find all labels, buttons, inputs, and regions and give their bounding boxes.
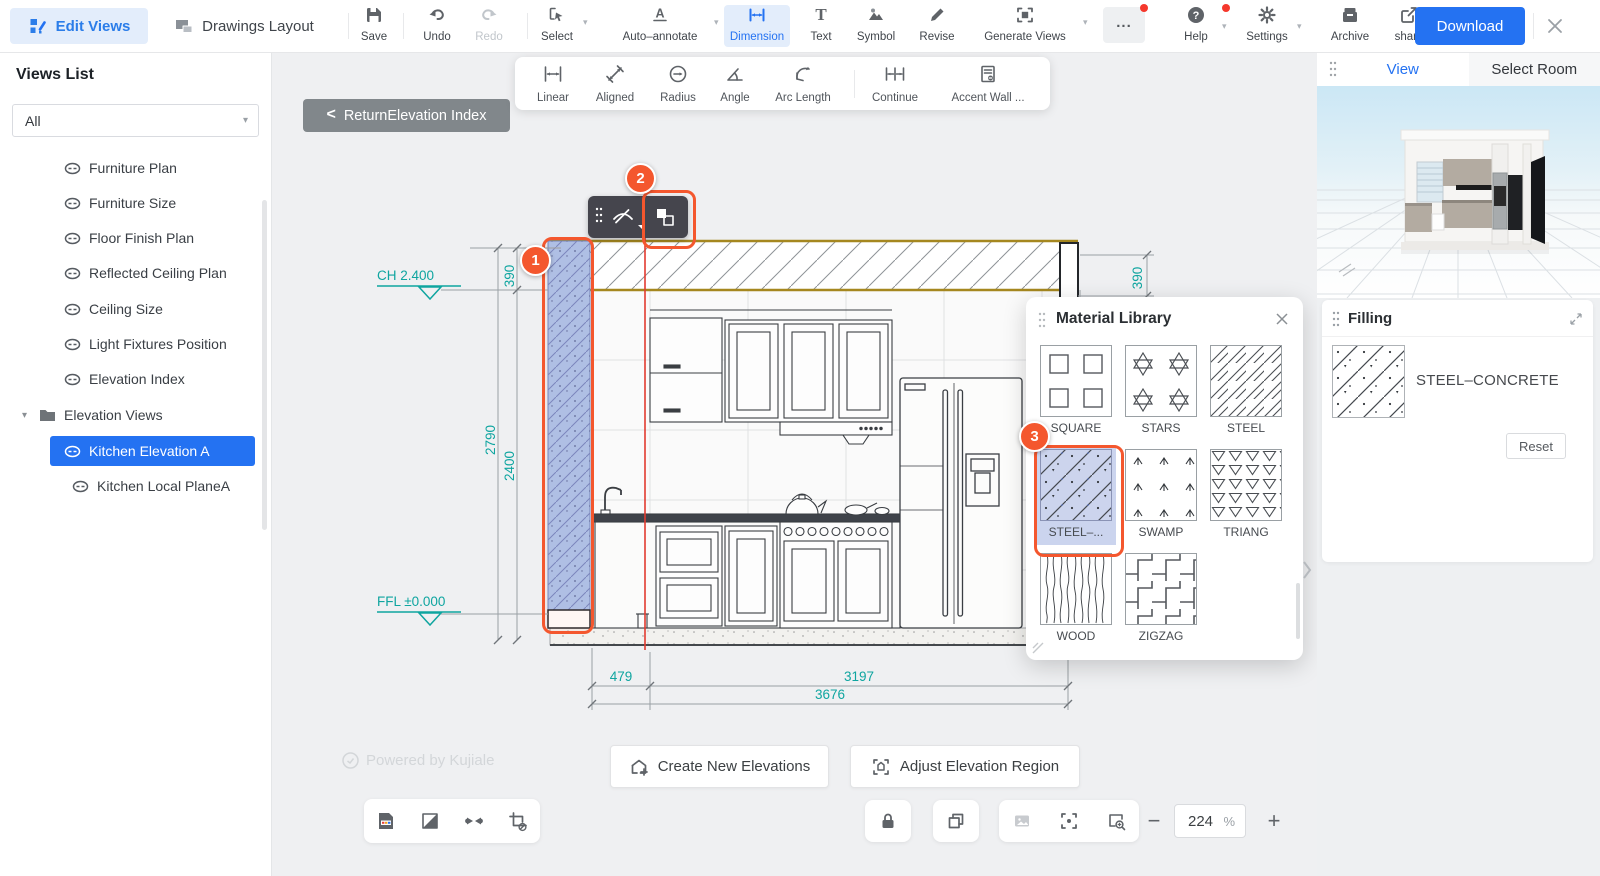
- save-icon: [364, 5, 384, 25]
- drag-handle-icon[interactable]: [1332, 311, 1340, 332]
- help-icon: ?: [1186, 5, 1206, 25]
- sidebar-item-elevation-index[interactable]: Elevation Index: [0, 364, 260, 394]
- save-label: Save: [342, 31, 406, 43]
- dim-band-right: 390: [1130, 267, 1145, 290]
- material-tile-stars[interactable]: STARS: [1125, 345, 1197, 437]
- tab-view-label: View: [1387, 61, 1419, 78]
- more-icon: ...: [1116, 14, 1132, 31]
- material-name: STEEL: [1210, 421, 1282, 437]
- edit-views-button[interactable]: Edit Views: [10, 8, 148, 44]
- focus-icon: [1059, 811, 1079, 831]
- sidebar-folder-elevation-views[interactable]: ▾ Elevation Views: [0, 400, 260, 430]
- hide-region-button[interactable]: [603, 205, 643, 229]
- eye-off-icon: [611, 205, 635, 229]
- filling-material-name: STEEL–CONCRETE: [1416, 372, 1559, 389]
- link-icon: [64, 162, 81, 175]
- material-tile-triang[interactable]: TRIANG: [1210, 449, 1282, 541]
- link-icon: [64, 232, 81, 245]
- home-plus-icon: [629, 757, 649, 777]
- radius-icon: [667, 63, 689, 85]
- step-marker-3: 3: [1019, 421, 1050, 452]
- more-button[interactable]: ...: [1103, 7, 1145, 43]
- generate-views-icon: [1015, 5, 1035, 25]
- doc-image-icon: [375, 810, 397, 832]
- adjust-region-icon: [871, 757, 891, 777]
- accent-wall-label: Accent Wall ...: [940, 92, 1036, 104]
- check-circle-icon: [342, 752, 359, 769]
- resize-handle-icon[interactable]: [1031, 641, 1045, 655]
- notification-dot: [1140, 4, 1148, 12]
- chevron-down-icon: ▾: [1083, 17, 1088, 28]
- settings-icon: [1257, 5, 1277, 25]
- chevron-down-icon: ▾: [1297, 21, 1302, 32]
- level-label-ceiling: CH 2.400: [377, 268, 434, 283]
- revise-label: Revise: [905, 31, 969, 43]
- marker-number: 2: [636, 170, 644, 187]
- material-name: ZIGZAG: [1125, 629, 1197, 645]
- redo-label: Redo: [457, 31, 521, 43]
- zoom-to-area-button[interactable]: [1106, 811, 1126, 831]
- svg-text:?: ?: [1193, 10, 1200, 22]
- tab-select-room-label: Select Room: [1491, 61, 1577, 78]
- settings-button[interactable]: Settings ▾: [1235, 5, 1299, 43]
- spline-button[interactable]: [463, 810, 485, 832]
- swap-button-highlight-ring: [642, 190, 696, 249]
- aligned-icon: [604, 63, 626, 85]
- material-name: TRIANG: [1210, 525, 1282, 541]
- dim-band-left: 390: [502, 265, 517, 288]
- close-icon: [1273, 310, 1291, 328]
- dimension-sub-toolbar: Linear Aligned Radius Angle Arc Length C…: [515, 57, 1050, 110]
- chevron-right-icon: [1301, 559, 1313, 581]
- drawing-canvas[interactable]: CH 2.400 FFL ±0.000 390 2790 2400 390 47…: [271, 52, 1317, 876]
- floor-band: [550, 628, 1083, 645]
- room-3d-preview[interactable]: [1317, 86, 1600, 298]
- crop-disabled-button[interactable]: [507, 810, 529, 832]
- drawing-editor-app: Edit Views Drawings Layout Save Undo Red…: [0, 0, 1600, 876]
- edit-views-label: Edit Views: [56, 18, 131, 35]
- redo-icon: [479, 5, 499, 25]
- material-name: STARS: [1125, 421, 1197, 437]
- lock-icon: [878, 811, 898, 831]
- duplicate-icon: [946, 811, 966, 831]
- close-button[interactable]: [1542, 13, 1568, 39]
- drag-handle-icon[interactable]: [595, 207, 603, 228]
- sidebar-item-kitchen-local-planea[interactable]: Kitchen Local PlaneA: [0, 471, 260, 501]
- link-icon: [64, 303, 81, 316]
- save-button[interactable]: Save: [342, 5, 406, 43]
- link-icon: [64, 373, 81, 386]
- dim-wall-height: 2400: [502, 451, 517, 481]
- zoom-level-input[interactable]: 224 %: [1174, 804, 1246, 838]
- divider: [403, 13, 404, 39]
- ceiling-hatch-band: [548, 241, 1078, 300]
- caret-down-icon: ▾: [22, 410, 27, 421]
- fill-style-button[interactable]: [419, 810, 441, 832]
- auto-annotate-label: Auto–annotate: [612, 31, 708, 43]
- help-label: Help: [1164, 31, 1228, 43]
- fit-view-button[interactable]: [1059, 811, 1079, 831]
- select-label: Select: [525, 31, 589, 43]
- chevron-down-icon: ▾: [583, 17, 588, 28]
- annotation-tools-panel: [364, 799, 540, 843]
- dimension-tool-button[interactable]: Dimension: [724, 5, 790, 47]
- lock-button[interactable]: [865, 800, 911, 842]
- download-label: Download: [1437, 18, 1504, 35]
- notification-dot: [1222, 4, 1230, 12]
- sidebar-folder-label: Elevation Views: [64, 407, 163, 423]
- image-preview-button[interactable]: [1012, 811, 1032, 831]
- material-library-title: Material Library: [1056, 310, 1171, 328]
- tab-select-room[interactable]: Select Room: [1469, 52, 1600, 86]
- revise-icon: [927, 5, 947, 25]
- drag-handle-icon[interactable]: [1317, 52, 1337, 86]
- zoom-out-button[interactable]: −: [1137, 800, 1171, 842]
- undo-icon: [427, 5, 447, 25]
- views-list-sidebar: Views List All ▾ Furniture Plan Furnitur…: [0, 52, 272, 876]
- sidebar-item-furniture-size[interactable]: Furniture Size: [0, 188, 260, 218]
- symbol-tool-button[interactable]: Symbol: [844, 5, 908, 43]
- symbol-label: Symbol: [844, 31, 908, 43]
- top-toolbar: Edit Views Drawings Layout Save Undo Red…: [0, 0, 1600, 53]
- selected-material-ring: [1034, 445, 1124, 557]
- filling-title: Filling: [1348, 310, 1392, 327]
- zoom-unit: %: [1223, 814, 1235, 829]
- bowtie-icon: [463, 810, 485, 832]
- filling-panel: Filling STEEL–CONCRETE Reset: [1322, 300, 1593, 562]
- accent-wall-icon: [977, 63, 999, 85]
- drawing-sheet-button[interactable]: [375, 810, 397, 832]
- collapse-arrows-icon[interactable]: [1569, 312, 1583, 326]
- sidebar-item-floor-finish-plan[interactable]: Floor Finish Plan: [0, 223, 260, 253]
- minus-icon: −: [1148, 808, 1161, 834]
- text-icon: T: [811, 5, 831, 25]
- back-button-label: ReturnElevation Index: [344, 108, 487, 124]
- drawings-layout-icon: [174, 16, 194, 36]
- continue-dimension-button[interactable]: Continue: [857, 63, 933, 104]
- link-icon: [64, 197, 81, 210]
- material-name: SQUARE: [1040, 421, 1112, 437]
- material-library-close-button[interactable]: [1273, 310, 1291, 328]
- select-tool-button[interactable]: Select ▾: [525, 5, 589, 43]
- material-tile-wood[interactable]: WOOD: [1040, 553, 1112, 645]
- edit-views-icon: [28, 16, 48, 36]
- revise-tool-button[interactable]: Revise: [905, 5, 969, 43]
- create-new-elevations-label: Create New Elevations: [658, 758, 811, 775]
- plus-icon: +: [1268, 808, 1281, 834]
- reset-label: Reset: [1519, 439, 1553, 454]
- download-button[interactable]: Download: [1415, 7, 1525, 45]
- dimension-icon: [747, 5, 767, 25]
- redo-button[interactable]: Redo: [457, 5, 521, 43]
- svg-text:T: T: [815, 5, 827, 24]
- generate-views-button[interactable]: Generate Views ▾: [975, 5, 1075, 43]
- sidebar-item-ceiling-size[interactable]: Ceiling Size: [0, 294, 260, 324]
- sidebar-item-label: Light Fixtures Position: [89, 336, 227, 352]
- create-new-elevations-button[interactable]: Create New Elevations: [610, 745, 829, 788]
- accent-wall-highlight-ring: [542, 237, 594, 634]
- material-library-panel: Material Library SQUARE STARS STEEL: [1026, 297, 1303, 660]
- watermark-text: Powered by Kujiale: [366, 752, 494, 769]
- collapse-panel-button[interactable]: [1297, 556, 1317, 584]
- link-icon: [64, 338, 81, 351]
- room-3d-render: [1317, 86, 1600, 298]
- divider: [1533, 13, 1534, 39]
- angle-dimension-button[interactable]: Angle: [697, 63, 773, 104]
- drawings-layout-button[interactable]: Drawings Layout: [158, 8, 330, 44]
- auto-annotate-button[interactable]: A Auto–annotate ▾: [612, 5, 708, 43]
- generate-views-label: Generate Views: [975, 31, 1075, 43]
- svg-text:A: A: [655, 7, 664, 21]
- tab-view[interactable]: View: [1337, 52, 1469, 86]
- material-tile-square[interactable]: SQUARE: [1040, 345, 1112, 437]
- drag-handle-icon[interactable]: [1038, 312, 1046, 333]
- dimension-label: Dimension: [724, 31, 790, 43]
- sidebar-item-label: Floor Finish Plan: [89, 230, 194, 246]
- zoom-value: 224: [1188, 813, 1223, 830]
- drawings-layout-label: Drawings Layout: [202, 18, 314, 35]
- chevron-left-icon: <: [326, 106, 335, 124]
- arc-length-icon: [792, 63, 814, 85]
- link-icon: [72, 480, 89, 493]
- material-library-scrollbar[interactable]: [1296, 583, 1300, 639]
- dim-total-height: 2790: [483, 425, 498, 455]
- angle-label: Angle: [697, 92, 773, 104]
- auto-annotate-icon: A: [650, 5, 670, 25]
- sidebar-item-furniture-plan[interactable]: Furniture Plan: [0, 153, 260, 183]
- close-icon: [1546, 17, 1564, 35]
- half-square-icon: [419, 810, 441, 832]
- angle-icon: [724, 63, 746, 85]
- views-filter-value: All: [25, 113, 243, 129]
- archive-label: Archive: [1318, 31, 1382, 43]
- marker-number: 3: [1030, 428, 1038, 445]
- divider: [854, 70, 855, 98]
- select-icon: [547, 5, 567, 25]
- accent-wall-button[interactable]: Accent Wall ...: [940, 63, 1036, 104]
- arc-length-dimension-button[interactable]: Arc Length: [763, 63, 843, 104]
- zoom-area-icon: [1106, 811, 1126, 831]
- return-elevation-index-button[interactable]: < ReturnElevation Index: [303, 99, 510, 132]
- sidebar-item-label: Elevation Index: [89, 371, 185, 387]
- refrigerator: [900, 378, 1022, 628]
- step-marker-2: 2: [625, 163, 656, 194]
- material-tile-swamp[interactable]: SWAMP: [1125, 449, 1197, 541]
- link-icon: [64, 267, 81, 280]
- symbol-icon: [866, 5, 886, 25]
- level-label-floor: FFL ±0.000: [377, 594, 445, 609]
- folder-icon: [39, 408, 56, 422]
- adjust-elevation-region-label: Adjust Elevation Region: [900, 758, 1059, 775]
- views-list-title: Views List: [16, 66, 94, 84]
- sidebar-item-label: Reflected Ceiling Plan: [89, 265, 227, 281]
- sidebar-scrollbar[interactable]: [262, 200, 267, 530]
- continue-icon: [884, 63, 906, 85]
- archive-button[interactable]: Archive: [1318, 5, 1382, 43]
- views-filter-select[interactable]: All ▾: [12, 104, 259, 137]
- material-tile-steel[interactable]: STEEL: [1210, 345, 1282, 437]
- crop-slash-icon: [507, 810, 529, 832]
- continue-label: Continue: [857, 92, 933, 104]
- watermark: Powered by Kujiale: [342, 752, 494, 769]
- divider: [1322, 336, 1593, 337]
- arc-length-label: Arc Length: [763, 92, 843, 104]
- image-icon: [1012, 811, 1032, 831]
- sidebar-item-kitchen-elevation-a[interactable]: Kitchen Elevation A: [50, 436, 255, 466]
- chevron-down-icon: ▾: [714, 17, 719, 28]
- dim-seg-right: 3197: [844, 669, 874, 684]
- view-tools-panel: [999, 800, 1139, 842]
- sidebar-item-label: Furniture Plan: [89, 160, 177, 176]
- sidebar-item-label: Ceiling Size: [89, 301, 163, 317]
- zoom-in-button[interactable]: +: [1257, 800, 1291, 842]
- right-panel: View Select Room: [1317, 52, 1600, 876]
- reset-button[interactable]: Reset: [1506, 433, 1566, 459]
- dim-seg-left: 479: [610, 669, 633, 684]
- settings-label: Settings: [1235, 31, 1299, 43]
- help-button[interactable]: ? Help ▾: [1164, 5, 1228, 43]
- link-icon: [64, 445, 81, 458]
- sidebar-item-label: Furniture Size: [89, 195, 176, 211]
- sidebar-item-reflected-ceiling-plan[interactable]: Reflected Ceiling Plan: [0, 258, 260, 288]
- adjust-elevation-region-button[interactable]: Adjust Elevation Region: [850, 745, 1080, 788]
- marker-number: 1: [531, 252, 539, 269]
- dim-total-width: 3676: [815, 687, 845, 702]
- chevron-down-icon: ▾: [1222, 21, 1227, 32]
- material-name: WOOD: [1040, 629, 1112, 645]
- sidebar-item-label: Kitchen Local PlaneA: [97, 478, 230, 494]
- linear-icon: [542, 63, 564, 85]
- current-filling-swatch[interactable]: [1332, 345, 1405, 418]
- material-name: SWAMP: [1125, 525, 1197, 541]
- sidebar-selected-label: Kitchen Elevation A: [89, 443, 210, 459]
- sidebar-item-light-fixtures-position[interactable]: Light Fixtures Position: [0, 329, 260, 359]
- step-marker-1: 1: [520, 245, 551, 276]
- right-panel-tabs: View Select Room: [1317, 52, 1600, 87]
- archive-icon: [1340, 5, 1360, 25]
- duplicate-button[interactable]: [933, 800, 979, 842]
- material-tile-zigzag[interactable]: ZIGZAG: [1125, 553, 1197, 645]
- chevron-down-icon: ▾: [243, 115, 248, 126]
